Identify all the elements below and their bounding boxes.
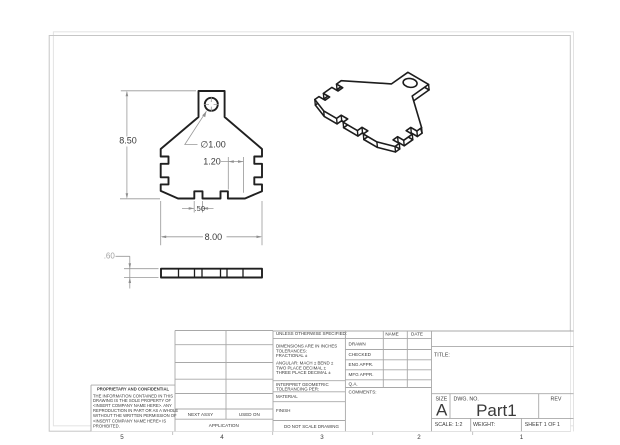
svg-text:4: 4 (220, 434, 224, 441)
svg-text:8.50: 8.50 (119, 136, 137, 146)
svg-text:DRAWN: DRAWN (349, 342, 366, 347)
svg-text:THE INFORMATION CONTAINED IN T: THE INFORMATION CONTAINED IN THIS (93, 393, 173, 398)
svg-text:∅1.00: ∅1.00 (200, 139, 225, 149)
svg-text:DWG. NO.: DWG. NO. (454, 396, 479, 402)
svg-text:NAME: NAME (385, 332, 398, 337)
svg-text:TOLERANCING PER:: TOLERANCING PER: (276, 387, 319, 392)
svg-text:ENG APPR.: ENG APPR. (349, 362, 374, 367)
svg-text:APPLICATION: APPLICATION (209, 423, 239, 428)
svg-text:.60: .60 (104, 251, 116, 260)
svg-text:MATERIAL: MATERIAL (276, 394, 298, 399)
svg-text:5: 5 (120, 434, 124, 441)
svg-text:.50: .50 (195, 204, 205, 213)
svg-text:REV: REV (551, 396, 562, 402)
svg-text:NEXT ASSY: NEXT ASSY (188, 412, 213, 417)
svg-text:SCALE: 1:2: SCALE: 1:2 (435, 422, 463, 428)
svg-text:1.20: 1.20 (203, 157, 221, 167)
svg-text:MFG APPR.: MFG APPR. (349, 372, 374, 377)
svg-text:Part1: Part1 (476, 401, 517, 420)
svg-text:A: A (436, 401, 448, 420)
svg-text:FINISH: FINISH (276, 408, 290, 413)
svg-text:DO NOT SCALE DRAWING: DO NOT SCALE DRAWING (284, 424, 339, 429)
svg-text:PROPRIETARY AND CONFIDENTIAL: PROPRIETARY AND CONFIDENTIAL (97, 386, 170, 391)
svg-text:8.00: 8.00 (205, 232, 223, 242)
svg-text:ANGULAR: MACH ± BEND ±: ANGULAR: MACH ± BEND ± (276, 360, 334, 365)
svg-text:TITLE:: TITLE: (434, 352, 450, 358)
svg-text:COMMENTS:: COMMENTS: (349, 389, 377, 394)
svg-text:WEIGHT:: WEIGHT: (473, 422, 495, 428)
svg-text:DATE: DATE (411, 332, 423, 337)
svg-text:PROHIBITED.: PROHIBITED. (93, 423, 120, 428)
svg-text:USED ON: USED ON (239, 412, 260, 417)
svg-text:<INSERT COMPANY NAME HERE>. AN: <INSERT COMPANY NAME HERE>. ANY (93, 403, 172, 408)
svg-text:<INSERT COMPANY NAME HERE> IS: <INSERT COMPANY NAME HERE> IS (93, 418, 166, 423)
svg-text:CHECKED: CHECKED (349, 352, 372, 357)
svg-text:1: 1 (520, 434, 524, 441)
svg-text:3: 3 (320, 434, 324, 441)
svg-text:DRAWING IS THE SOLE PROPERTY O: DRAWING IS THE SOLE PROPERTY OF (93, 398, 171, 403)
svg-text:THREE PLACE DECIMAL ±: THREE PLACE DECIMAL ± (276, 370, 331, 375)
svg-text:REPRODUCTION IN PART OR AS A W: REPRODUCTION IN PART OR AS A WHOLE (93, 408, 178, 413)
svg-text:UNLESS OTHERWISE SPECIFIED:: UNLESS OTHERWISE SPECIFIED: (276, 331, 347, 336)
svg-text:SHEET 1 OF 1: SHEET 1 OF 1 (525, 422, 560, 428)
svg-text:2: 2 (417, 434, 421, 441)
svg-text:WITHOUT THE WRITTEN PERMISSION: WITHOUT THE WRITTEN PERMISSION OF (93, 413, 177, 418)
svg-text:Q.A.: Q.A. (349, 382, 358, 387)
svg-text:FRACTIONAL ±: FRACTIONAL ± (276, 353, 308, 358)
